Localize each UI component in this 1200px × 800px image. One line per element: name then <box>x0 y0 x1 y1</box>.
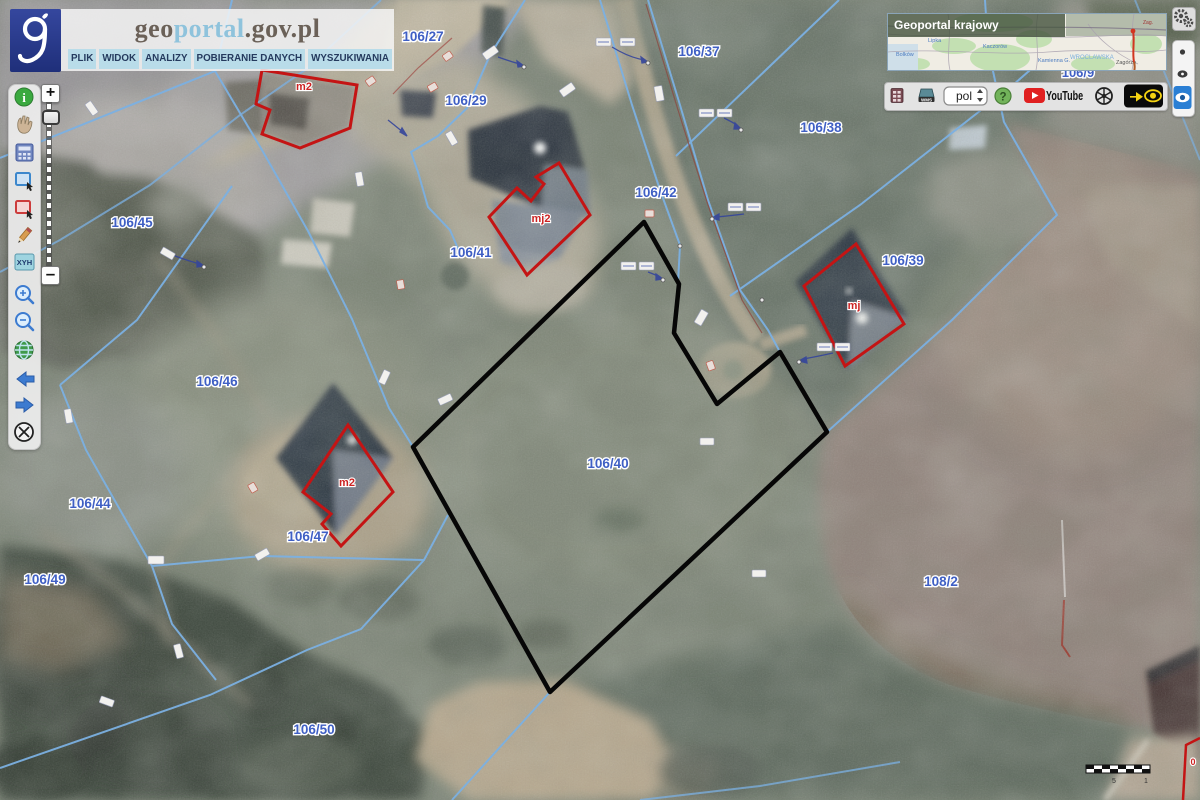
svg-text:106/39: 106/39 <box>882 253 923 268</box>
svg-text:mj: mj <box>848 300 861 312</box>
svg-text:0: 0 <box>1190 757 1195 767</box>
svg-text:WROCLAWSKA: WROCLAWSKA <box>1070 55 1114 61</box>
svg-text:106/37: 106/37 <box>678 44 719 59</box>
svg-text:pol: pol <box>956 89 972 103</box>
svg-text:106/47: 106/47 <box>287 529 328 544</box>
svg-text:?: ? <box>999 92 1006 104</box>
svg-text:YouTube: YouTube <box>1046 90 1083 104</box>
svg-text:106/50: 106/50 <box>293 722 334 737</box>
svg-text:Kaczorów: Kaczorów <box>983 44 1007 50</box>
svg-text:WMS: WMS <box>921 98 932 103</box>
svg-text:106/41: 106/41 <box>450 245 492 260</box>
svg-text:Zag.: Zag. <box>1143 20 1153 26</box>
svg-text:106/42: 106/42 <box>635 185 676 200</box>
svg-text:106/49: 106/49 <box>24 572 65 587</box>
svg-text:m2: m2 <box>296 81 312 93</box>
svg-text:Bolków: Bolków <box>896 52 914 58</box>
svg-text:106/38: 106/38 <box>800 120 842 135</box>
svg-text:mj2: mj2 <box>532 213 551 225</box>
svg-text:1: 1 <box>1144 778 1148 785</box>
svg-text:i: i <box>22 90 26 105</box>
svg-text:108/2: 108/2 <box>924 574 958 589</box>
svg-text:106/40: 106/40 <box>587 456 628 471</box>
svg-text:m2: m2 <box>339 477 355 489</box>
svg-text:106/29: 106/29 <box>445 93 486 108</box>
svg-text:Lipka: Lipka <box>928 38 942 44</box>
svg-text:Kamienna G.: Kamienna G. <box>1038 58 1071 64</box>
svg-text:XYH: XYH <box>17 258 32 267</box>
svg-text:106/27: 106/27 <box>402 29 443 44</box>
svg-text:106/45: 106/45 <box>111 215 153 230</box>
svg-text:106/44: 106/44 <box>69 496 111 511</box>
svg-text:5: 5 <box>1112 778 1116 785</box>
svg-text:106/46: 106/46 <box>196 374 238 389</box>
